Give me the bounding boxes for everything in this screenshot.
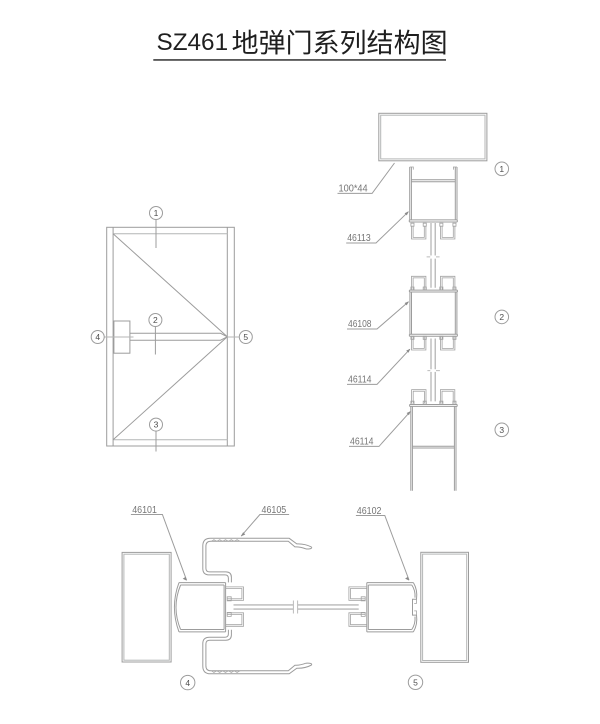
svg-text:46108: 46108 (348, 319, 372, 330)
svg-text:3: 3 (154, 420, 159, 430)
svg-text:100*44: 100*44 (339, 183, 368, 194)
svg-text:4: 4 (185, 678, 190, 688)
svg-text:5: 5 (243, 332, 248, 342)
svg-text:46114: 46114 (350, 437, 374, 448)
svg-text:2: 2 (499, 312, 504, 322)
svg-text:SZ461: SZ461 (157, 29, 229, 56)
svg-text:4: 4 (95, 332, 100, 342)
svg-text:46113: 46113 (347, 233, 371, 244)
svg-text:1: 1 (154, 208, 159, 218)
svg-text:3: 3 (499, 425, 504, 435)
svg-text:46114: 46114 (348, 375, 372, 386)
svg-text:5: 5 (413, 678, 418, 688)
svg-text:1: 1 (499, 164, 504, 174)
svg-text:2: 2 (153, 315, 158, 325)
